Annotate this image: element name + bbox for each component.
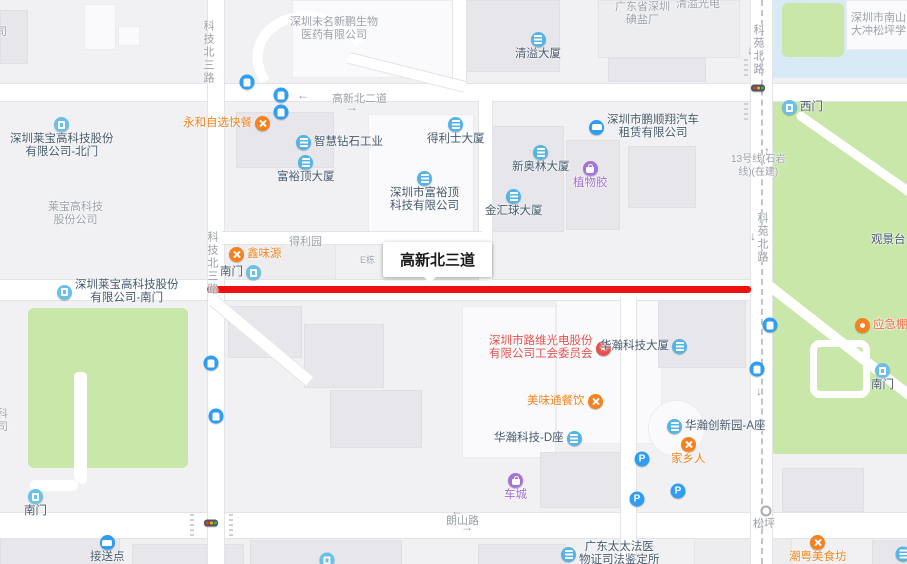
- poi-south-gate-right-park-label: 南门: [871, 379, 894, 392]
- traffic-light-icon-lights: [206, 522, 209, 525]
- area-label-weiming-biotech-line: 医药有限公司: [290, 29, 378, 42]
- poi-xinweiyuan-label: 鑫味源: [247, 248, 282, 261]
- door-icon: [57, 285, 72, 300]
- bld-i-icon: [448, 117, 463, 132]
- poi-south-gate-keji-rd[interactable]: 南门: [220, 265, 261, 280]
- direction-arrow: ↓: [747, 44, 753, 56]
- poi-pickup-point-label: 接送点: [90, 551, 125, 564]
- traffic-light-icon-body: [751, 85, 765, 92]
- poi-huahan-block-d-label: 华瀚科技-D座: [494, 432, 564, 445]
- poi-jiaxiangren-label: 家乡人: [671, 453, 706, 466]
- traffic-light-icon-body: [204, 520, 218, 527]
- area-label-dachong-school-line: 大冲松坪学: [851, 25, 906, 38]
- car-icon: [589, 120, 604, 135]
- bld-i-icon: [296, 135, 311, 150]
- shelter-icon: [855, 318, 870, 333]
- area-label-deliyuan: 得利园: [289, 236, 322, 249]
- poi-zhihui-diamond-industry-label: 智慧钻石工业: [314, 136, 383, 149]
- songping-station-marker: [761, 506, 772, 517]
- bus-stop-icon[interactable]: [750, 362, 765, 377]
- park-path: [74, 372, 87, 484]
- poi-xinaolin-tower-line: 新奥林大厦: [512, 161, 570, 174]
- building-shape: [782, 468, 864, 512]
- road-label-keji-north-3rd-mid-line: 科技北三路: [205, 231, 218, 296]
- poi-yonghe-fastfood-line: 永和自选快餐: [183, 117, 252, 130]
- traffic-light-icon: [204, 520, 218, 527]
- road-minor-vertical: [452, 0, 467, 84]
- building-icon: [896, 547, 907, 562]
- building-shape: [84, 4, 116, 50]
- poi-xinweiyuan-line: 鑫味源: [247, 248, 282, 261]
- poi-laibao-north-gate-line: 深圳莱宝高科技股份: [10, 133, 114, 146]
- songping-station-marker-dot: [761, 506, 772, 517]
- poi-jiaxiangren-line: 家乡人: [671, 453, 706, 466]
- direction-arrow: ↑: [764, 145, 770, 157]
- road-minor-vertical: [620, 298, 637, 564]
- bus-stop-icon-glyph: [767, 321, 774, 329]
- poi-zhiwujiao[interactable]: 植物胶: [573, 161, 608, 190]
- road-label-keyuan-north-mid-line: 科苑北路: [755, 212, 768, 264]
- poi-huahan-tower[interactable]: 华瀚科技大厦: [600, 339, 687, 354]
- building-shape: [478, 544, 566, 564]
- poi-qingyi-tower[interactable]: 清溢大厦: [515, 32, 561, 61]
- area-label-iodized-salt-factory-line: 碘盐厂: [615, 14, 670, 27]
- bus-stop-icon-glyph: [208, 359, 215, 367]
- road-label-keji-north-3rd-mid: 科技北三路: [205, 231, 218, 296]
- area-label-edge-mid: 科司: [0, 408, 8, 434]
- poi-pengshunxiang-car-rental[interactable]: 深圳市鹏顺翔汽车租赁有限公司: [589, 114, 699, 140]
- door-icon: [782, 100, 797, 115]
- area-label-dachong-school: 深圳市南山大冲松坪学: [851, 12, 906, 38]
- bld-i-icon: [567, 431, 582, 446]
- bld-i-icon-glyph: [676, 342, 684, 351]
- bus-stop-icon: [274, 88, 289, 103]
- poi-pickup-point[interactable]: 接送点: [90, 535, 125, 564]
- bus-stop-icon[interactable]: [763, 318, 778, 333]
- bus-stop-icon-glyph: [278, 91, 285, 99]
- parking-icon[interactable]: P: [630, 492, 645, 507]
- building-shape: [132, 544, 244, 564]
- bus-stop-icon[interactable]: [209, 409, 224, 424]
- poi-yonghe-fastfood-label: 永和自选快餐: [183, 117, 252, 130]
- door-icon-glyph: [879, 367, 886, 375]
- door-icon-glyph: [32, 493, 39, 501]
- bus-stop-icon: [204, 356, 219, 371]
- building-shape: [330, 390, 422, 448]
- bus-stop-icon[interactable]: [274, 105, 289, 120]
- callout-road-name: 高新北三道: [400, 249, 475, 270]
- parking-icon[interactable]: P: [671, 484, 686, 499]
- area-label-weiming-biotech: 深圳未名新鹏生物医药有限公司: [290, 16, 378, 42]
- poi-luwei-union-committee-line: 深圳市路维光电股份: [489, 335, 593, 348]
- poi-huahan-block-d[interactable]: 华瀚科技-D座: [494, 431, 582, 446]
- door-icon-glyph: [786, 104, 793, 112]
- poi-huahan-innovation-a[interactable]: 华瀚创新园-A座: [667, 419, 766, 434]
- poi-laibao-south-gate-label: 深圳莱宝高科技股份有限公司-南门: [75, 279, 179, 305]
- road-label-gaoxin-north-2nd-line: 高新北二道: [332, 93, 387, 106]
- bag-icon: [583, 161, 598, 176]
- building-icon-glyph: [899, 550, 907, 559]
- map-canvas[interactable]: 高新北三道 科技北三路科技北三路科苑北路科苑北路高新北二道朗山路松坪13号线(石…: [0, 0, 907, 564]
- parking-icon[interactable]: P: [635, 452, 650, 467]
- car-icon: [100, 535, 115, 550]
- food-icon: [810, 535, 825, 550]
- highlighted-road-segment[interactable]: [207, 286, 751, 293]
- poi-delishi-tower-label: 得利士大厦: [427, 133, 485, 146]
- poi-luwei-union-committee-line: 有限公司工会委员会: [489, 348, 593, 361]
- traffic-light-icon-lights: [753, 87, 756, 90]
- bld-i-icon: [561, 547, 576, 562]
- direction-arrow: ↓: [756, 385, 762, 397]
- shelter-icon-glyph: [860, 323, 865, 328]
- poi-zhiwujiao-line: 植物胶: [573, 177, 608, 190]
- bld-i-icon-glyph: [421, 174, 429, 183]
- car-icon-glyph: [592, 124, 602, 130]
- poi-zhihui-diamond-industry[interactable]: 智慧钻石工业: [296, 135, 383, 150]
- parking-icon: P: [671, 484, 686, 499]
- road-label-gaoxin-north-2nd: 高新北二道: [332, 93, 387, 106]
- bld-i-icon: [533, 145, 548, 160]
- crosswalk: [744, 58, 748, 76]
- parking-icon-glyph: P: [675, 486, 682, 496]
- poi-chaoyue-food-line: 潮粤美食坊: [789, 551, 847, 564]
- food-icon-glyph: [258, 119, 267, 128]
- poi-fuyuding-tech-label: 深圳市富裕顶科技有限公司: [390, 187, 459, 213]
- poi-meiweitong-catering-line: 美味通餐饮: [527, 395, 585, 408]
- building-icon[interactable]: [896, 547, 907, 562]
- poi-west-gate-park[interactable]: 西门: [782, 100, 823, 115]
- poi-huahan-tower-label: 华瀚科技大厦: [600, 340, 669, 353]
- poi-south-gate-left-park-label: 南门: [24, 505, 47, 518]
- bag-icon-glyph: [586, 167, 594, 173]
- poi-chaoyue-food[interactable]: 潮粤美食坊: [789, 535, 847, 564]
- poi-pengshunxiang-car-rental-line: 租赁有限公司: [607, 127, 699, 140]
- food-icon: [681, 437, 696, 452]
- direction-arrow: ↓: [750, 230, 756, 242]
- bld-i-icon-glyph: [537, 148, 545, 157]
- gate-icon[interactable]: [320, 553, 335, 564]
- poi-forensic-center-label: 广东太太法医物证司法鉴定所: [579, 541, 660, 564]
- area-label-laibao-line: 股份公司: [48, 214, 103, 227]
- poi-jinhuiqiu-tower-line: 金汇球大厦: [485, 205, 543, 218]
- label-metro-line13-line: 13号线(石岩: [731, 153, 785, 166]
- area-label-iodized-salt-factory: 广东省深圳碘盐厂: [615, 1, 670, 27]
- area-label-iodized-salt-factory-line: 广东省深圳: [615, 1, 670, 14]
- poi-huahan-block-d-line: 华瀚科技-D座: [494, 432, 564, 445]
- building-shape: [304, 324, 384, 388]
- poi-fuyuding-tech-line: 深圳市富裕顶: [390, 187, 459, 200]
- bus-stop-icon-glyph: [754, 365, 761, 373]
- food-icon: [255, 116, 270, 131]
- poi-emergency-shelter[interactable]: 应急棚宿: [855, 318, 907, 333]
- bld-i-icon: [667, 419, 682, 434]
- poi-emergency-shelter-label: 应急棚宿: [873, 319, 907, 332]
- poi-checheng[interactable]: 车城: [504, 473, 527, 502]
- road-label-keji-north-3rd-top: 科技北三路: [201, 20, 214, 85]
- bld-i-icon: [506, 189, 521, 204]
- building-shape: [658, 300, 746, 368]
- poi-xinaolin-tower-label: 新奥林大厦: [512, 161, 570, 174]
- bus-stop-icon-glyph: [213, 412, 220, 420]
- poi-yonghe-fastfood[interactable]: 永和自选快餐: [183, 116, 270, 131]
- poi-zhihui-diamond-industry-line: 智慧钻石工业: [314, 136, 383, 149]
- road-label-songping-line: 松坪: [753, 518, 775, 531]
- building-shape: [118, 26, 140, 46]
- door-icon: [875, 363, 890, 378]
- poi-south-gate-keji-rd-line: 南门: [220, 266, 243, 279]
- poi-luwei-union-committee[interactable]: ★深圳市路维光电股份有限公司工会委员会: [489, 335, 611, 361]
- poi-laibao-south-gate[interactable]: 深圳莱宝高科技股份有限公司-南门: [57, 279, 179, 305]
- bus-stop-icon[interactable]: [240, 75, 255, 90]
- poi-jinhuiqiu-tower[interactable]: 金汇球大厦: [485, 189, 543, 218]
- poi-laibao-south-gate-line: 深圳莱宝高科技股份: [75, 279, 179, 292]
- poi-checheng-label: 车城: [504, 489, 527, 502]
- poi-forensic-center-line: 广东太太法医: [579, 541, 660, 554]
- crosswalk: [229, 513, 233, 536]
- poi-meiweitong-catering[interactable]: 美味通餐饮: [527, 394, 603, 409]
- poi-qingyi-tower-label: 清溢大厦: [515, 48, 561, 61]
- food-icon-glyph: [232, 250, 241, 259]
- door-icon: [28, 489, 43, 504]
- poi-delishi-tower-line: 得利士大厦: [427, 133, 485, 146]
- poi-jinhuiqiu-tower-label: 金汇球大厦: [485, 205, 543, 218]
- area-label-edge-top-line: 司: [0, 26, 7, 39]
- bld-i-icon-glyph: [671, 422, 679, 431]
- area-label-qingyi-guangdian: 清溢光电: [676, 0, 720, 11]
- poi-xinaolin-tower[interactable]: 新奥林大厦: [512, 145, 570, 174]
- road-label-keji-north-3rd-top-line: 科技北三路: [201, 20, 214, 85]
- area-label-edge-mid-line: 司: [0, 421, 8, 434]
- parking-icon-glyph: P: [634, 494, 641, 504]
- food-icon-glyph: [591, 397, 600, 406]
- poi-south-gate-right-park[interactable]: 南门: [871, 363, 894, 392]
- poi-checheng-line: 车城: [504, 489, 527, 502]
- poi-huahan-innovation-a-line: 华瀚创新园-A座: [685, 420, 766, 433]
- food-icon: [229, 247, 244, 262]
- poi-xinweiyuan[interactable]: 鑫味源: [229, 247, 282, 262]
- area-label-dachong-school-line: 深圳市南山: [851, 12, 906, 25]
- poi-fuyuding-tower[interactable]: 富裕顶大厦: [277, 155, 335, 184]
- poi-pengshunxiang-car-rental-label: 深圳市鹏顺翔汽车租赁有限公司: [607, 114, 699, 140]
- crosswalk: [190, 513, 194, 536]
- poi-forensic-center-line: 物证司法鉴定所: [579, 554, 660, 564]
- park-loop-path: [810, 340, 870, 398]
- park-top-right: [782, 3, 844, 57]
- poi-west-gate-park-label: 西门: [800, 101, 823, 114]
- poi-viewing-platform[interactable]: 观景台: [871, 233, 907, 248]
- area-label-edge-mid-line: 科: [0, 408, 8, 421]
- direction-arrow: ←: [297, 89, 309, 101]
- parking-icon: P: [630, 492, 645, 507]
- bld-i-icon: [298, 155, 313, 170]
- bus-stop-icon: [750, 362, 765, 377]
- bus-stop-icon: [763, 318, 778, 333]
- bld-i-icon-glyph: [570, 434, 578, 443]
- car-icon-glyph: [102, 540, 112, 546]
- bld-i-icon: [417, 171, 432, 186]
- bld-i-icon: [531, 32, 546, 47]
- bld-i-icon-glyph: [510, 192, 518, 201]
- poi-forensic-center[interactable]: 广东太太法医物证司法鉴定所: [561, 541, 660, 564]
- bld-i-icon-glyph: [534, 35, 542, 44]
- label-metro-line13: 13号线(石岩线)(在建): [731, 153, 785, 179]
- area-label-e-block-line: E栋: [360, 254, 375, 267]
- direction-arrow: →: [461, 521, 473, 533]
- building-shape: [608, 58, 706, 82]
- parking-icon: P: [635, 452, 650, 467]
- poi-huahan-innovation-a-label: 华瀚创新园-A座: [685, 420, 766, 433]
- poi-laibao-north-gate[interactable]: 深圳莱宝高科技股份有限公司-北门: [10, 117, 114, 159]
- gate-icon-glyph: [324, 556, 331, 564]
- poi-meiweitong-catering-label: 美味通餐饮: [527, 395, 585, 408]
- bld-i-icon-glyph: [565, 550, 573, 559]
- poi-luwei-union-committee-label: 深圳市路维光电股份有限公司工会委员会: [489, 335, 593, 361]
- area-label-edge-top: 司: [0, 26, 7, 39]
- food-icon-glyph: [684, 440, 693, 449]
- bus-stop-icon: [240, 75, 255, 90]
- direction-arrow: →: [346, 101, 358, 113]
- poi-fuyuding-tower-label: 富裕顶大厦: [277, 171, 335, 184]
- parking-icon-glyph: P: [639, 454, 646, 464]
- door-icon: [54, 117, 69, 132]
- road-label-songping: 松坪: [753, 518, 775, 531]
- poi-huahan-tower-line: 华瀚科技大厦: [600, 340, 669, 353]
- gate-icon: [320, 553, 335, 564]
- direction-arrow: ←: [451, 505, 463, 517]
- area-label-weiming-biotech-line: 深圳未名新鹏生物: [290, 16, 378, 29]
- poi-south-gate-keji-rd-label: 南门: [220, 266, 243, 279]
- door-icon: [246, 265, 261, 280]
- bus-stop-icon[interactable]: [204, 356, 219, 371]
- building-shape: [628, 146, 696, 208]
- poi-chaoyue-food-label: 潮粤美食坊: [789, 551, 847, 564]
- crosswalk: [744, 102, 748, 120]
- poi-qingyi-tower-line: 清溢大厦: [515, 48, 561, 61]
- bld-i-icon-glyph: [300, 138, 308, 147]
- road-highlight-callout: 高新北三道: [383, 242, 492, 277]
- poi-west-gate-park-line: 西门: [800, 101, 823, 114]
- bld-i-icon-glyph: [302, 158, 310, 167]
- area-label-qingyi-guangdian-line: 清溢光电: [676, 0, 720, 11]
- poi-south-gate-left-park[interactable]: 南门: [24, 489, 47, 518]
- area-label-laibao: 莱宝高科技股份公司: [48, 201, 103, 227]
- poi-jiaxiangren[interactable]: 家乡人: [671, 437, 706, 466]
- door-icon-glyph: [61, 288, 68, 296]
- bus-stop-icon-glyph: [244, 78, 251, 86]
- poi-zhiwujiao-label: 植物胶: [573, 177, 608, 190]
- label-metro-line13-line: 线)(在建): [731, 166, 785, 179]
- door-icon-glyph: [250, 269, 257, 277]
- food-icon-glyph: [813, 538, 822, 547]
- traffic-light-icon: [751, 85, 765, 92]
- building-shape: [556, 298, 662, 444]
- poi-laibao-north-gate-line: 有限公司-北门: [10, 146, 114, 159]
- poi-viewing-platform-label: 观景台: [871, 234, 906, 247]
- poi-laibao-south-gate-line: 有限公司-南门: [75, 292, 179, 305]
- poi-fuyuding-tech-line: 科技有限公司: [390, 200, 459, 213]
- bag-icon-glyph: [512, 479, 520, 485]
- poi-south-gate-right-park-line: 南门: [871, 379, 894, 392]
- area-label-laibao-line: 莱宝高科技: [48, 201, 103, 214]
- bus-stop-icon[interactable]: [274, 88, 289, 103]
- door-icon-glyph: [58, 121, 65, 129]
- poi-emergency-shelter-line: 应急棚宿: [873, 319, 907, 332]
- poi-pengshunxiang-car-rental-line: 深圳市鹏顺翔汽车: [607, 114, 699, 127]
- poi-delishi-tower[interactable]: 得利士大厦: [427, 117, 485, 146]
- bld-i-icon-glyph: [452, 120, 460, 129]
- bus-stop-icon-glyph: [278, 108, 285, 116]
- bag-icon: [508, 473, 523, 488]
- poi-fuyuding-tower-line: 富裕顶大厦: [277, 171, 335, 184]
- bus-stop-icon: [274, 105, 289, 120]
- poi-fuyuding-tech[interactable]: 深圳市富裕顶科技有限公司: [390, 171, 459, 213]
- poi-south-gate-left-park-line: 南门: [24, 505, 47, 518]
- food-icon: [588, 394, 603, 409]
- park-bottom-left: [28, 308, 188, 468]
- area-label-e-block: E栋: [360, 254, 375, 267]
- poi-viewing-platform-line: 观景台: [871, 234, 906, 247]
- bld-i-icon: [672, 339, 687, 354]
- road-label-keyuan-north-mid: 科苑北路: [755, 212, 768, 264]
- area-label-deliyuan-line: 得利园: [289, 236, 322, 249]
- bus-stop-icon: [209, 409, 224, 424]
- poi-laibao-north-gate-label: 深圳莱宝高科技股份有限公司-北门: [10, 133, 114, 159]
- poi-pickup-point-line: 接送点: [90, 551, 125, 564]
